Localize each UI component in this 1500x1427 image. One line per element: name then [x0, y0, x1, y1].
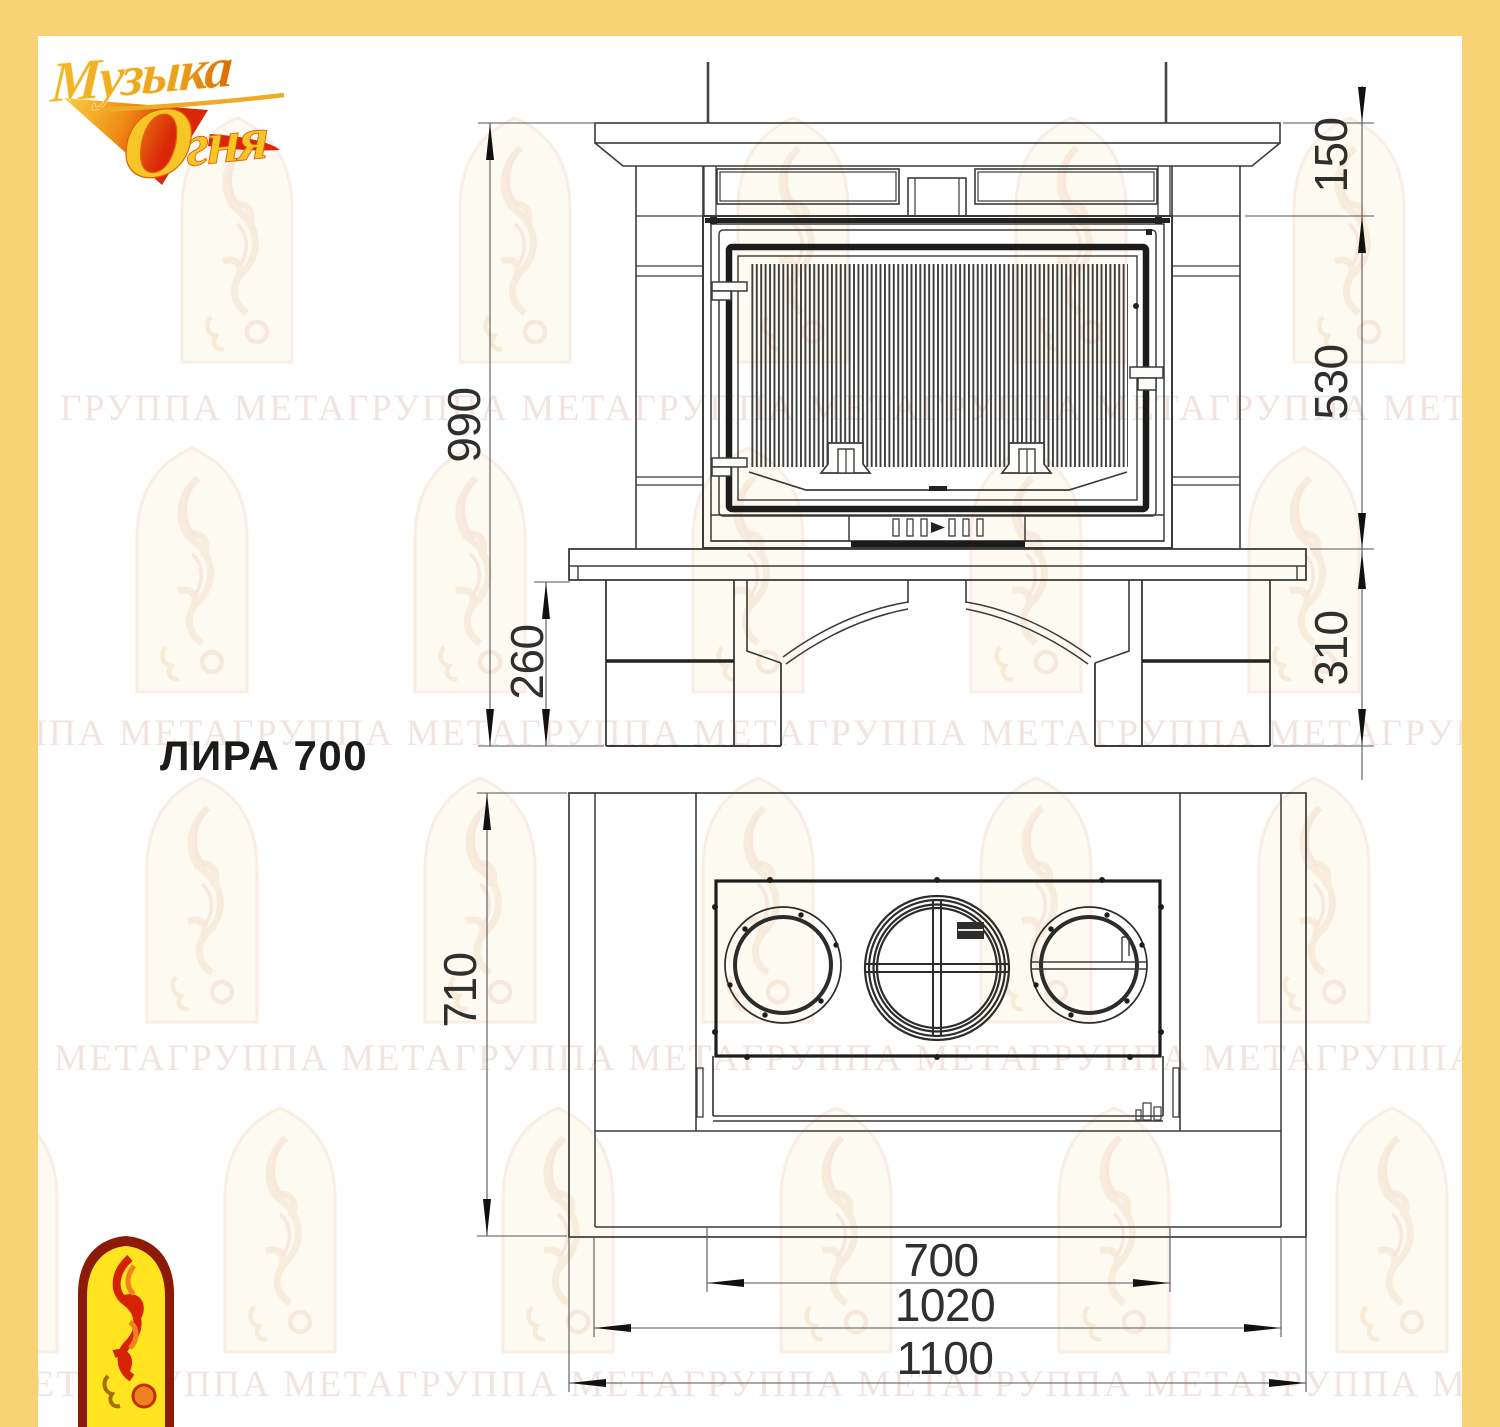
svg-text:150: 150 [1305, 117, 1357, 192]
svg-text:ЛИРА 700: ЛИРА 700 [160, 732, 368, 779]
svg-text:710: 710 [434, 952, 486, 1027]
svg-text:990: 990 [438, 387, 490, 462]
svg-text:260: 260 [501, 624, 553, 699]
svg-text:310: 310 [1305, 610, 1357, 685]
svg-text:1020: 1020 [895, 1279, 995, 1331]
svg-text:1100: 1100 [897, 1332, 994, 1384]
svg-text:530: 530 [1305, 344, 1357, 419]
svg-text:О: О [122, 83, 194, 198]
svg-text:гня: гня [187, 104, 267, 180]
